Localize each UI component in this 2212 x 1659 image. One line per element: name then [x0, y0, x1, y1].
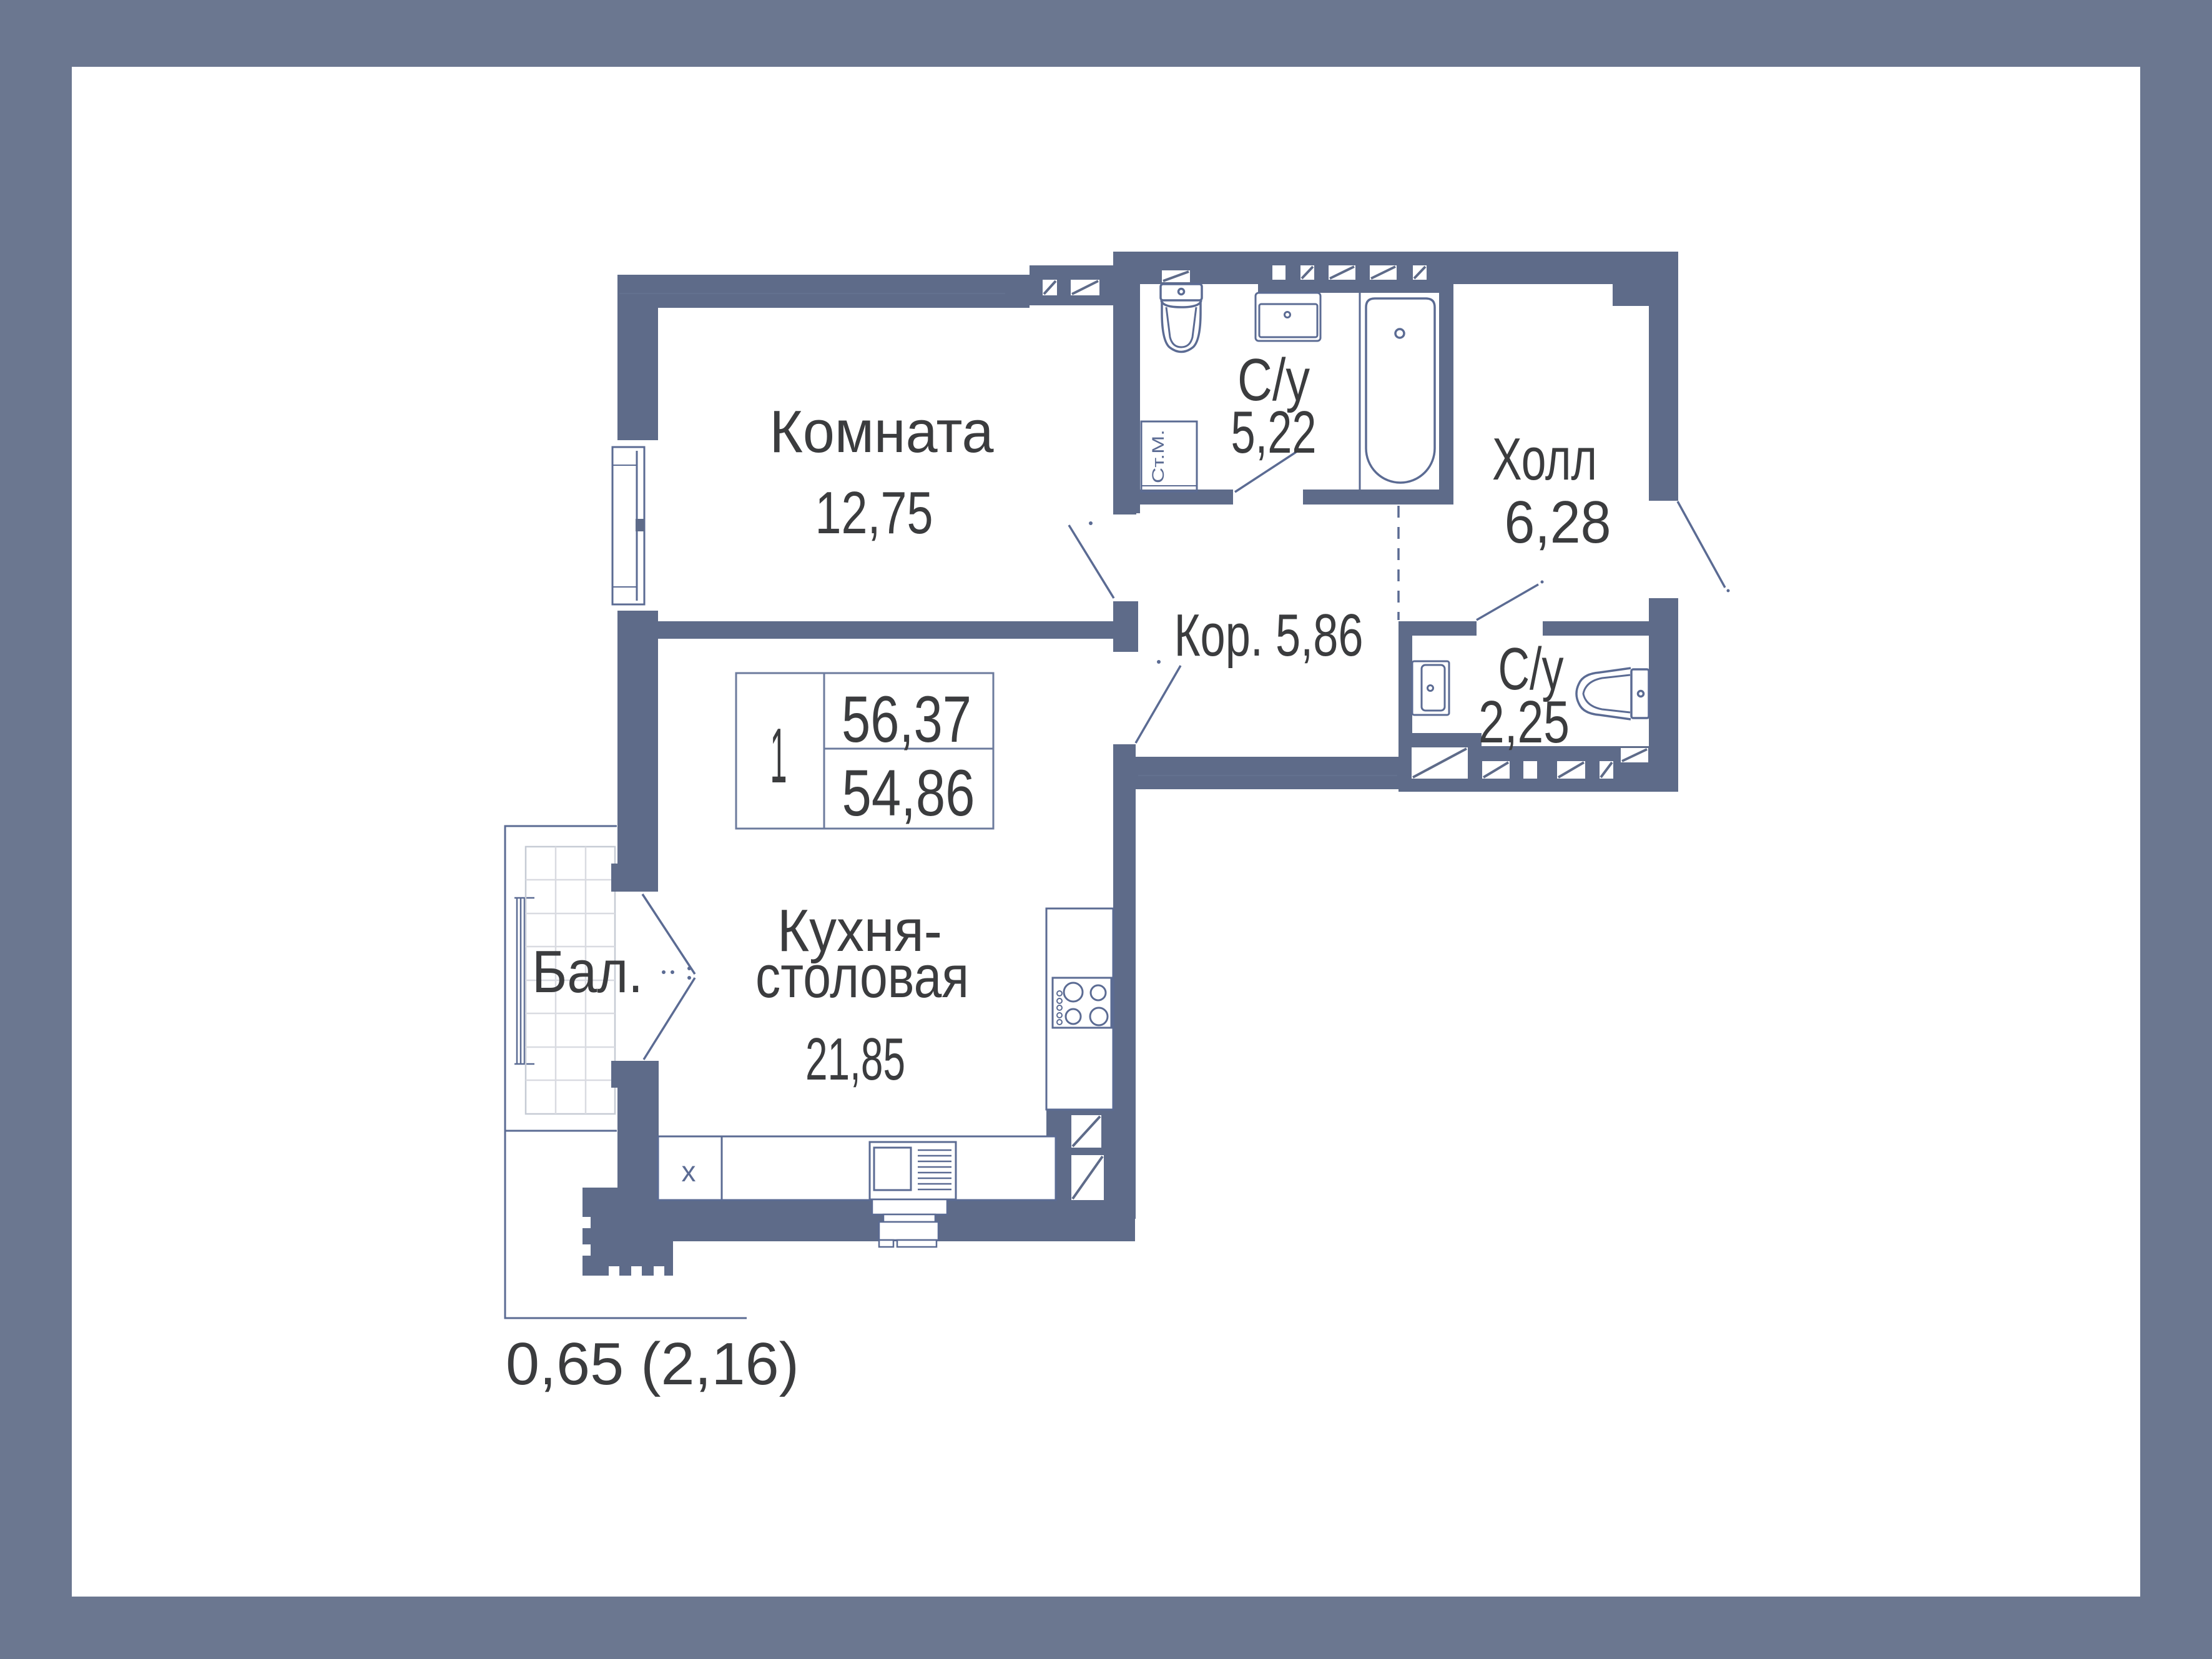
svg-text:5,22: 5,22 — [1231, 399, 1317, 466]
svg-text:6,28: 6,28 — [1505, 489, 1611, 556]
svg-text:2,25: 2,25 — [1478, 689, 1570, 756]
svg-text:56,37: 56,37 — [842, 683, 971, 756]
svg-text:столовая: столовая — [755, 943, 969, 1010]
svg-text:Комната: Комната — [770, 398, 995, 465]
svg-text:0,65 (2,16): 0,65 (2,16) — [506, 1331, 799, 1397]
svg-text:1: 1 — [770, 713, 787, 799]
svg-text:12,75: 12,75 — [815, 480, 933, 546]
svg-text:Кор. 5,86: Кор. 5,86 — [1174, 602, 1364, 669]
svg-text:Ст.М.: Ст.М. — [1149, 430, 1167, 483]
svg-text:Холл: Холл — [1492, 426, 1597, 493]
svg-text:54,86: 54,86 — [842, 757, 975, 830]
svg-text:x: x — [682, 1155, 696, 1188]
svg-text:21,85: 21,85 — [805, 1026, 905, 1093]
svg-text:Бал.: Бал. — [532, 938, 643, 1005]
